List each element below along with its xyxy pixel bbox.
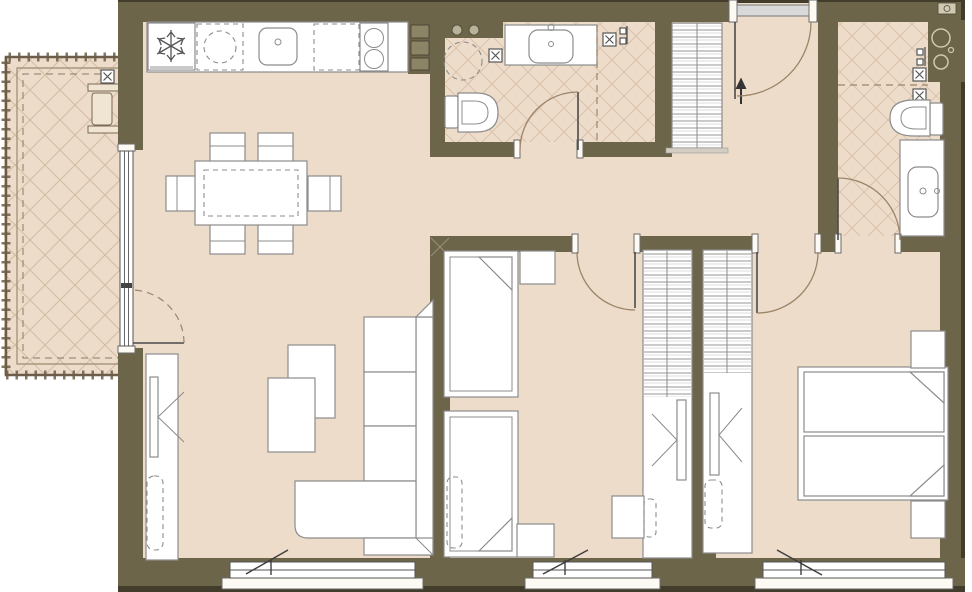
tv-screen xyxy=(150,377,158,457)
nightstand xyxy=(520,251,555,284)
dining-chair xyxy=(308,176,341,211)
coffee-table xyxy=(268,378,315,452)
single-bed xyxy=(444,251,518,397)
cooktop xyxy=(360,23,388,71)
entrance-door-slab xyxy=(737,5,809,16)
vanity-sink xyxy=(505,25,597,66)
sofa-back xyxy=(416,317,433,555)
kitchen xyxy=(147,22,408,72)
sofa-base xyxy=(364,538,433,555)
sofa-cushion xyxy=(364,372,416,426)
floor-drain-icon xyxy=(489,49,502,62)
nightstand xyxy=(911,501,945,538)
wardrobe-bedroom-1 xyxy=(643,250,692,558)
dining-chair xyxy=(166,176,199,211)
nightstand xyxy=(517,524,554,557)
wardrobe-bedroom-2 xyxy=(703,250,752,553)
kitchen-duct-column xyxy=(408,22,432,74)
single-bed xyxy=(444,411,518,557)
wall-bathroom-1-right xyxy=(655,22,672,157)
vanity-sink xyxy=(900,140,944,236)
fridge xyxy=(148,23,195,70)
fridge-base xyxy=(150,66,193,70)
wall-left-lower xyxy=(118,348,143,560)
floor-plan-canvas xyxy=(0,0,972,592)
wall-bathroom-2-left xyxy=(818,22,838,252)
top-right-vent-box xyxy=(938,3,956,14)
bathroom-2-service-shaft xyxy=(928,20,965,82)
door-handle xyxy=(121,283,132,288)
sofa-cushion xyxy=(364,317,416,372)
wall-mid-c xyxy=(898,236,940,252)
tv-unit xyxy=(146,354,184,560)
toilet xyxy=(890,100,943,136)
desk xyxy=(612,496,644,538)
wall-bathroom-1-left xyxy=(430,22,445,157)
nightstand xyxy=(911,331,945,368)
sofa-chaise xyxy=(295,481,416,538)
floor-plan xyxy=(0,0,972,592)
wall-mid-a xyxy=(430,236,577,252)
wall-right-edge xyxy=(961,0,965,590)
kitchen-sink xyxy=(259,28,297,65)
floor-drain-icon xyxy=(913,68,926,81)
toilet xyxy=(445,93,498,132)
wall-top-left xyxy=(118,2,735,22)
tv-panel-bedroom-1 xyxy=(677,400,686,480)
tv-panel-bedroom-2 xyxy=(710,393,719,475)
floor-drain-icon xyxy=(101,70,114,83)
bathroom-1-service-shaft xyxy=(445,22,503,38)
balcony xyxy=(4,57,126,375)
dining-table xyxy=(195,161,307,225)
floor-drain-icon xyxy=(603,33,616,46)
wardrobe-sill xyxy=(666,148,728,153)
wall-bathroom-1-bottom-a xyxy=(430,142,518,157)
wall-left-upper xyxy=(118,22,143,150)
sofa-cushion xyxy=(364,426,416,481)
double-bed xyxy=(798,367,948,500)
balcony-glass-door xyxy=(118,144,135,353)
